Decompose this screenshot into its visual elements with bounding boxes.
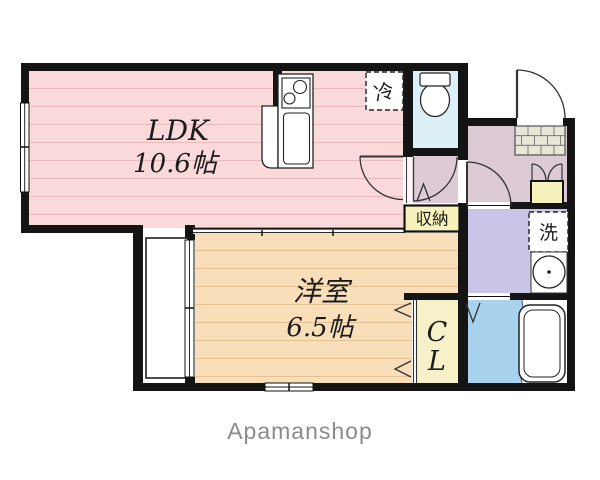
entrance-door	[517, 70, 565, 118]
ldk-western-sliding-partition	[193, 228, 405, 237]
vanity-sink-icon	[531, 252, 567, 293]
ldk-west-window	[21, 103, 30, 192]
western-room-label: 洋室	[293, 275, 353, 308]
ldk-door	[360, 157, 403, 200]
floorplan-canvas: 冷 収納 洗 LD	[0, 0, 600, 480]
kitchen-counter	[262, 74, 313, 168]
closet-label-l: L	[427, 346, 446, 377]
brand-logo-text: Apamanshop	[0, 418, 600, 445]
balcony	[146, 238, 188, 378]
bath-folding-door	[466, 303, 480, 322]
ldk-label: LDK	[146, 114, 211, 147]
washing-machine-space: 洗	[529, 212, 568, 252]
windows	[21, 103, 406, 391]
ldk-size-label: 10.6帖	[133, 149, 221, 179]
western-room-south-window	[265, 383, 313, 391]
washing-machine-label: 洗	[539, 222, 558, 244]
genkan-tile-floor	[515, 126, 565, 155]
washroom-door	[467, 162, 511, 206]
storage-box: 収納	[405, 206, 460, 232]
toilet-icon	[420, 73, 450, 117]
kitchen-sink-icon	[284, 113, 310, 164]
closet-label-c: C	[427, 317, 448, 348]
bathtub-icon	[519, 300, 567, 383]
closet-folding-door	[395, 300, 417, 383]
refrigerator-space: 冷	[366, 72, 403, 110]
floorplan-overlay: 冷 収納 洗 LD	[0, 0, 600, 480]
shoe-cabinet	[531, 164, 563, 204]
western-room-west-window	[185, 240, 194, 377]
storage-label: 収納	[416, 210, 449, 229]
toilet-door	[413, 157, 457, 201]
western-room-size-label: 6.5帖	[286, 313, 357, 343]
